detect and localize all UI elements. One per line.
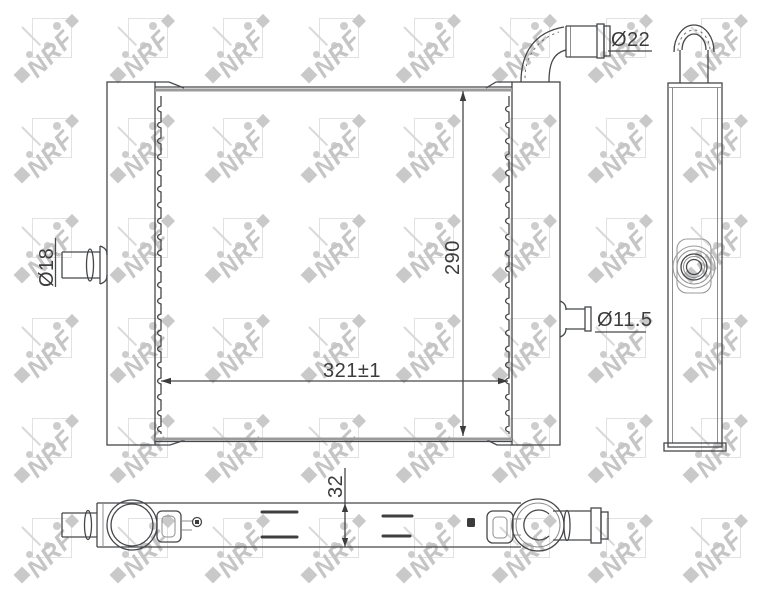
side-port-bore bbox=[687, 260, 702, 275]
dimension-width: 321±1 bbox=[161, 360, 508, 384]
dim-depth-arrow-top bbox=[342, 504, 348, 513]
core-fins-left bbox=[158, 96, 161, 434]
side-port-ring-bold bbox=[681, 254, 707, 280]
left-pipe-bead bbox=[87, 249, 94, 281]
dim-height-arrow-top bbox=[460, 91, 466, 101]
bottom-right-pipe-bead bbox=[564, 511, 570, 541]
dim-top-port-label: Ø22 bbox=[611, 29, 650, 51]
elbow-inner-curve bbox=[549, 50, 566, 82]
dim-depth-label: 32 bbox=[325, 475, 347, 498]
bottom-right-fitting-bore bbox=[524, 510, 549, 540]
bottom-left-pipe-bead bbox=[85, 511, 92, 540]
dim-height-label: 290 bbox=[442, 240, 464, 275]
dimension-depth: 32 bbox=[325, 468, 348, 547]
right-tank bbox=[512, 82, 560, 445]
bottom-right-pipe-cap bbox=[591, 508, 601, 543]
dim-left-port-label: Ø18 bbox=[36, 248, 58, 287]
side-loop-hatch bbox=[678, 30, 710, 51]
top-elbow-port bbox=[521, 24, 610, 82]
dim-height-arrow-bottom bbox=[460, 426, 466, 436]
left-tank bbox=[107, 82, 155, 445]
bottom-screw-left-head bbox=[195, 520, 199, 524]
bottom-view: 32 bbox=[62, 468, 608, 551]
bottom-left-fitting-inner bbox=[111, 504, 153, 546]
core-fins-right bbox=[506, 96, 509, 434]
bottom-right-clip-inner bbox=[493, 517, 507, 538]
left-pipe-flare-bottom bbox=[100, 275, 107, 284]
right-pipe-flare-bottom bbox=[560, 328, 566, 337]
side-loop-inner bbox=[682, 34, 706, 50]
bottom-right-pipe-tip bbox=[601, 512, 608, 539]
right-pipe-flare-top bbox=[560, 301, 566, 310]
radiator-technical-drawing: Ø22 Ø18 Ø11.5 290 bbox=[0, 0, 783, 600]
bottom-left-clip-inner bbox=[162, 516, 175, 537]
dim-depth-arrow-bottom bbox=[342, 538, 348, 547]
side-port-ring-mid bbox=[677, 250, 711, 284]
elbow-end-ring bbox=[597, 24, 604, 58]
left-tank-bottom-lip bbox=[155, 440, 185, 445]
left-port bbox=[62, 246, 107, 284]
right-tank-bottom-lip bbox=[487, 440, 512, 445]
bottom-screw-right bbox=[467, 518, 475, 527]
dim-width-label: 321±1 bbox=[323, 360, 381, 382]
bottom-left-fitting-outer bbox=[107, 500, 157, 550]
dim-right-port-label: Ø11.5 bbox=[597, 309, 653, 331]
side-body bbox=[668, 83, 722, 447]
side-view bbox=[664, 25, 726, 451]
dim-width-arrow-left bbox=[161, 378, 171, 384]
elbow-hatch bbox=[525, 32, 559, 78]
technical-drawing-page: { "watermark": { "text": "NRF", "color":… bbox=[0, 0, 783, 600]
left-pipe-flare-top bbox=[100, 246, 107, 255]
side-port-ring-outer bbox=[673, 246, 715, 288]
right-port bbox=[560, 301, 591, 337]
right-pipe-cap bbox=[585, 307, 591, 331]
dimension-height: 290 bbox=[442, 91, 466, 436]
front-view: Ø22 Ø18 Ø11.5 290 bbox=[36, 24, 653, 445]
side-loop-outer bbox=[674, 25, 714, 52]
bottom-right-fitting-outer bbox=[512, 499, 564, 551]
